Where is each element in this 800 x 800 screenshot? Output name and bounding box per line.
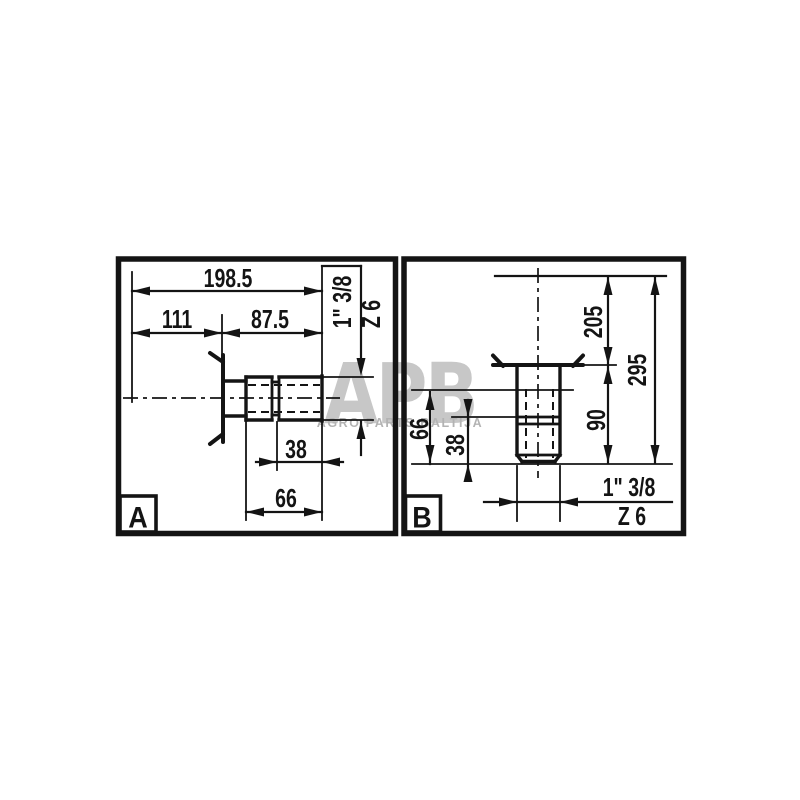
spline-size-label: 1" 3/8 [603, 472, 656, 501]
dim-spline-66: 66 [404, 418, 433, 440]
dim-left-length: 111 [162, 304, 193, 333]
spline-teeth-label: Z 6 [356, 300, 385, 328]
dim-height-90: 90 [581, 409, 610, 431]
panel-b-dimension-lines [430, 276, 672, 502]
dimension-drawing: 198.5 111 87.5 38 66 1" 3/8 Z 6 A [0, 0, 800, 800]
dim-total-length: 198.5 [204, 263, 253, 292]
dim-right-length: 87.5 [251, 304, 289, 333]
dim-height-205: 205 [578, 306, 607, 339]
dim-spline-38: 38 [285, 434, 307, 463]
panel-b-label: B [412, 501, 431, 535]
spline-size-label: 1" 3/8 [327, 276, 356, 329]
spline-teeth-label: Z 6 [618, 501, 646, 530]
panel-a: 198.5 111 87.5 38 66 1" 3/8 Z 6 A [119, 259, 396, 535]
panel-a-label: A [128, 501, 147, 535]
panel-b: 205 295 90 66 38 1" 3/8 Z 6 B [404, 259, 684, 535]
dim-spline-66: 66 [275, 483, 297, 512]
dim-spline-38: 38 [440, 434, 469, 456]
dim-height-295: 295 [622, 354, 651, 387]
technical-drawing-canvas: APB AGRO PARTS BALTIJA [0, 0, 800, 800]
